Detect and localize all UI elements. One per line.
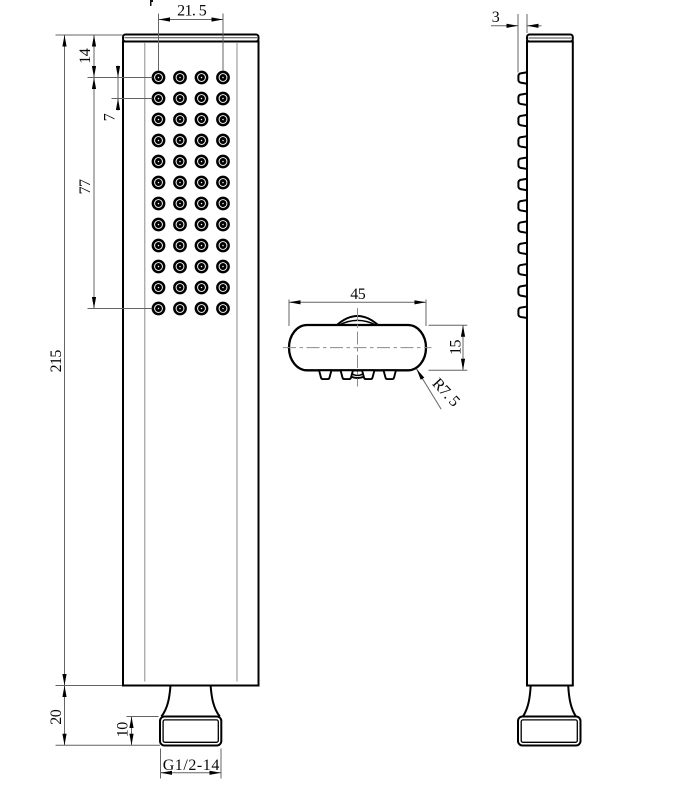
svg-text:14: 14: [77, 48, 94, 63]
svg-text:215: 215: [48, 350, 65, 373]
svg-text:10: 10: [115, 722, 132, 737]
svg-text:45: 45: [350, 286, 365, 303]
svg-text:20: 20: [48, 709, 65, 724]
svg-text:7: 7: [101, 113, 118, 121]
svg-text:3: 3: [492, 9, 500, 26]
svg-text:G1/2-14: G1/2-14: [163, 757, 220, 774]
svg-text:15: 15: [447, 340, 464, 355]
svg-text:21. 5: 21. 5: [177, 2, 207, 19]
svg-text:77: 77: [77, 179, 94, 194]
